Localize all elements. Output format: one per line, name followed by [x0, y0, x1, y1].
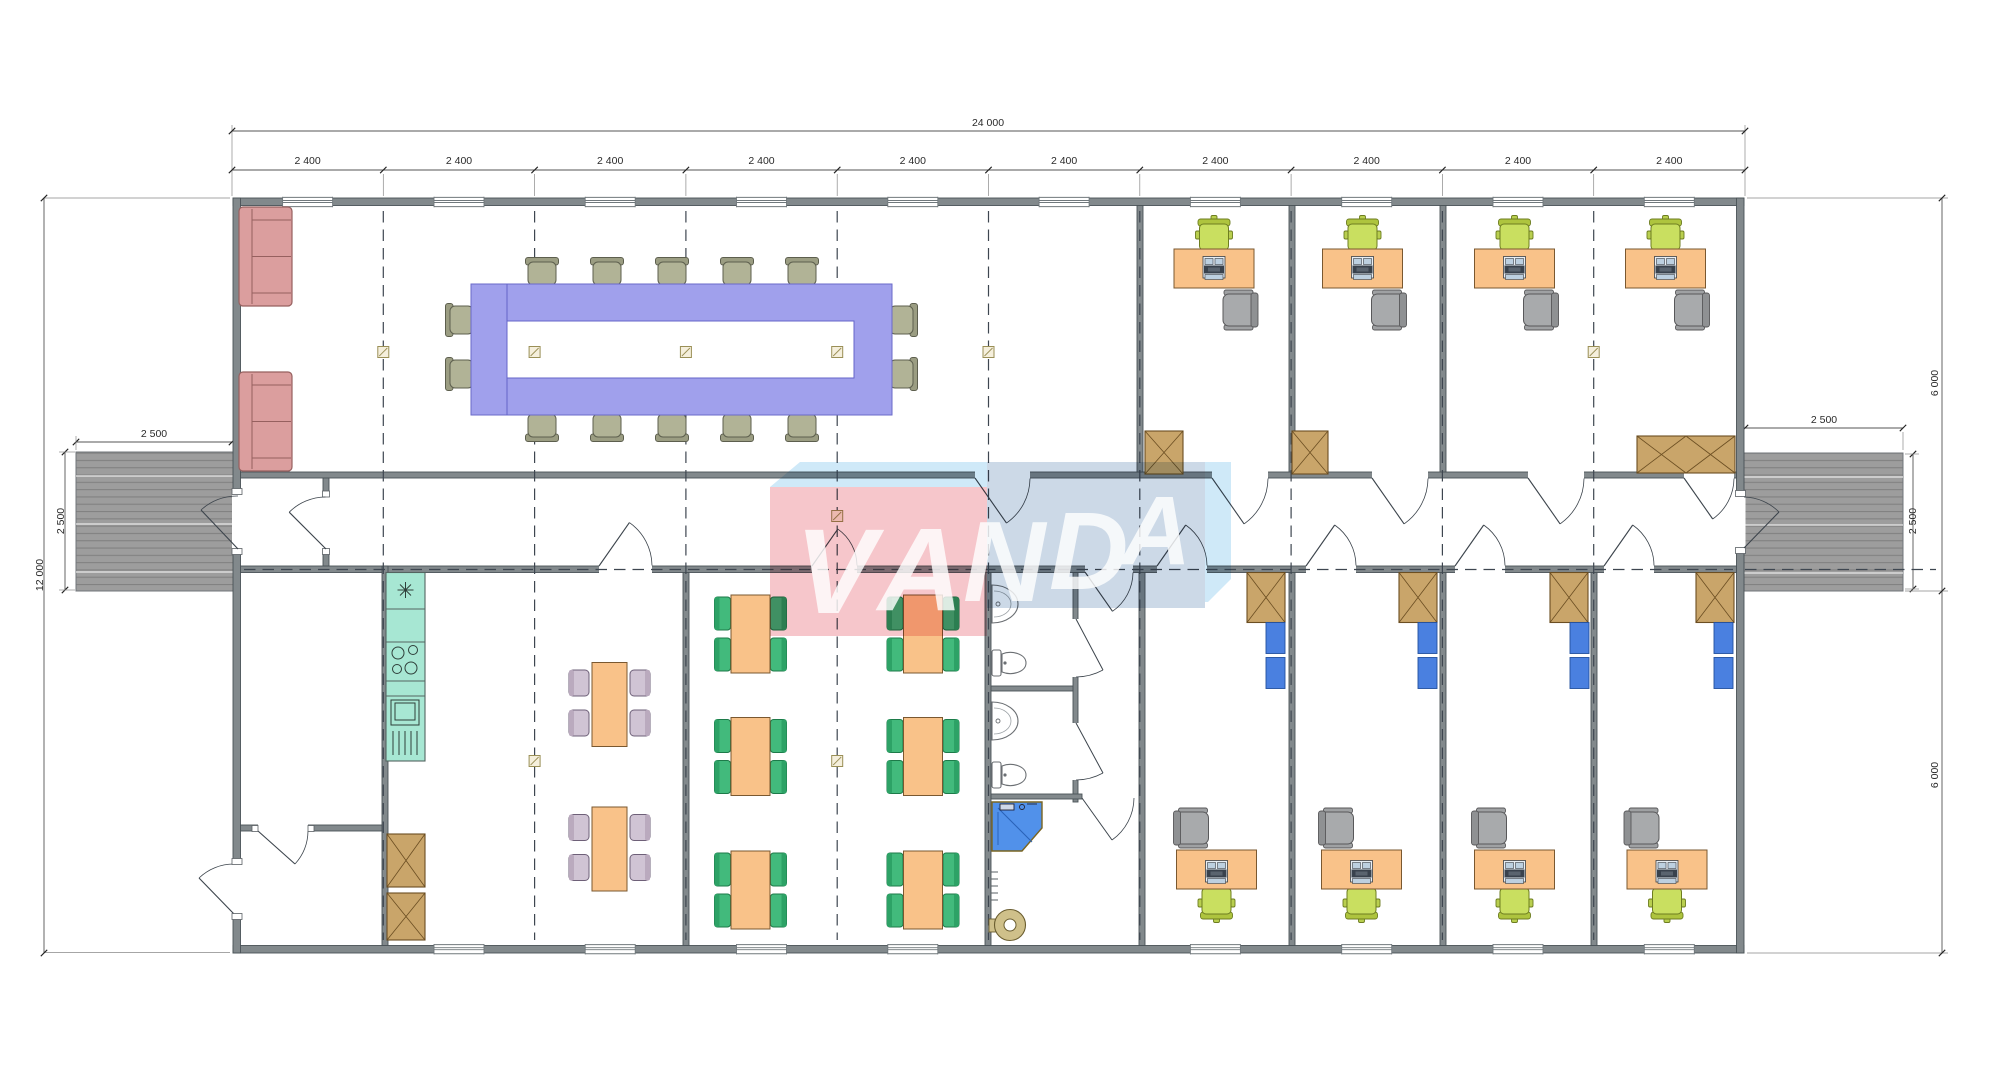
svg-text:2 400: 2 400	[1202, 155, 1228, 167]
svg-text:2 500: 2 500	[1811, 414, 1837, 426]
svg-text:2 500: 2 500	[1907, 508, 1919, 534]
svg-text:2 400: 2 400	[900, 155, 926, 167]
svg-text:2 400: 2 400	[597, 155, 623, 167]
svg-text:6 000: 6 000	[1929, 370, 1941, 396]
svg-text:2 500: 2 500	[141, 428, 167, 440]
svg-text:2 400: 2 400	[1051, 155, 1077, 167]
svg-text:2 400: 2 400	[1505, 155, 1531, 167]
svg-text:2 400: 2 400	[294, 155, 320, 167]
svg-text:24 000: 24 000	[972, 117, 1004, 129]
svg-text:12 000: 12 000	[34, 559, 46, 591]
svg-text:2 400: 2 400	[1354, 155, 1380, 167]
svg-text:2 400: 2 400	[748, 155, 774, 167]
svg-text:2 400: 2 400	[446, 155, 472, 167]
svg-text:2 400: 2 400	[1656, 155, 1682, 167]
svg-text:6 000: 6 000	[1929, 762, 1941, 788]
svg-text:2 500: 2 500	[55, 508, 67, 534]
